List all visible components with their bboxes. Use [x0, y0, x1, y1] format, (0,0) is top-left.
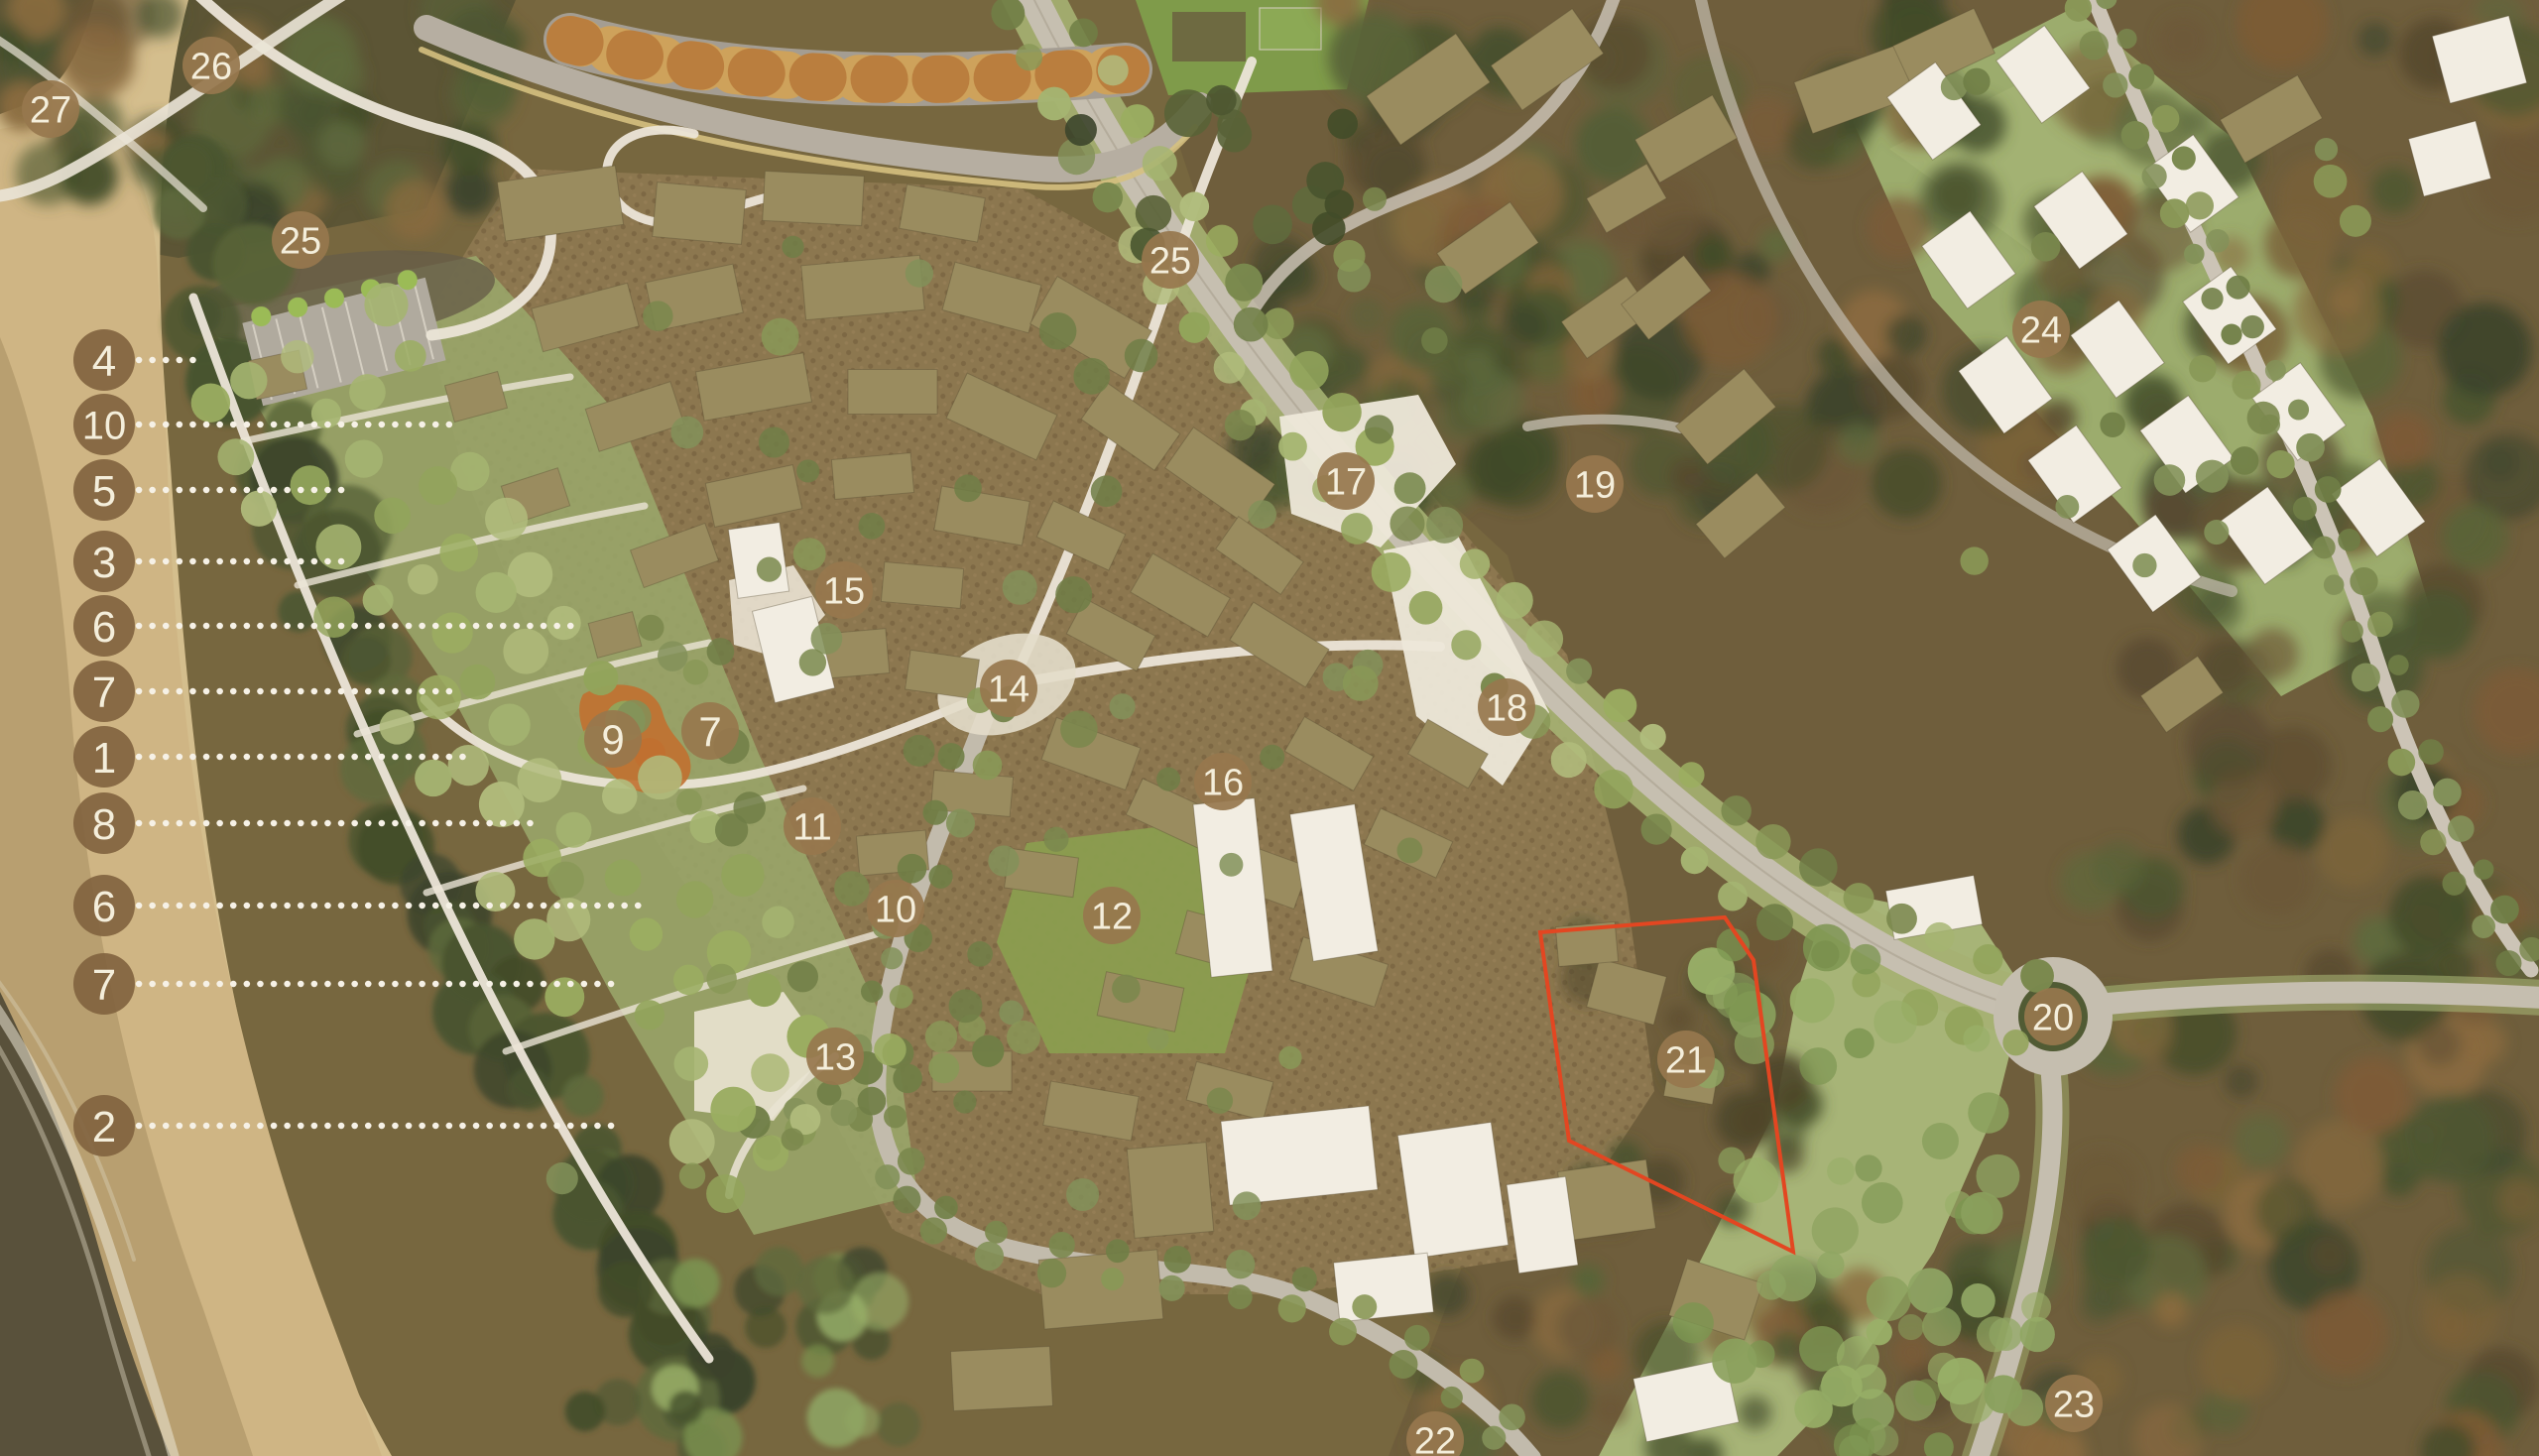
legend-marker-number: 8 [92, 800, 116, 849]
map-marker-number: 14 [988, 669, 1029, 711]
map-marker-number: 25 [280, 221, 321, 263]
map-marker-number: 10 [875, 890, 916, 931]
map-marker-15: 15 [815, 561, 873, 619]
map-marker-18: 18 [1478, 678, 1535, 736]
map-marker-number: 11 [792, 807, 831, 849]
map-marker-25: 25 [1142, 231, 1199, 289]
map-marker-19: 19 [1566, 455, 1624, 513]
legend-marker-number: 4 [92, 337, 116, 386]
legend-marker-number: 6 [92, 603, 116, 652]
map-marker-14: 14 [980, 660, 1037, 717]
legend-marker-number: 10 [82, 404, 127, 447]
map-marker-20: 20 [2024, 988, 2082, 1045]
map-marker-21: 21 [1657, 1031, 1715, 1088]
map-marker-number: 24 [2020, 310, 2062, 352]
map-marker-7: 7 [681, 702, 739, 760]
masterplan-screenshot: 4105367186722726252524191715141816791110… [0, 0, 2539, 1456]
map-marker-10: 10 [867, 880, 924, 937]
map-marker-number: 23 [2053, 1385, 2095, 1426]
map-marker-number: 15 [823, 571, 865, 613]
map-marker-number: 22 [1414, 1421, 1456, 1456]
site-plan-map: 4105367186722726252524191715141816791110… [0, 0, 2539, 1456]
map-marker-12: 12 [1083, 887, 1141, 944]
map-marker-16: 16 [1194, 753, 1252, 810]
legend-marker-number: 7 [92, 961, 116, 1010]
details-layer [0, 0, 2539, 1456]
map-marker-24: 24 [2012, 301, 2070, 358]
map-marker-number: 13 [814, 1037, 856, 1079]
map-marker-number: 25 [1149, 241, 1191, 283]
map-marker-number: 17 [1325, 462, 1367, 504]
map-marker-number: 18 [1486, 688, 1527, 730]
map-marker-number: 9 [601, 716, 624, 763]
map-marker-number: 16 [1202, 763, 1244, 804]
map-marker-25: 25 [272, 211, 329, 269]
map-marker-11: 11 [784, 797, 841, 855]
map-marker-number: 20 [2032, 998, 2074, 1039]
map-marker-13: 13 [806, 1028, 864, 1085]
map-marker-23: 23 [2045, 1375, 2103, 1432]
legend-marker-number: 5 [92, 467, 116, 516]
legend-marker-number: 6 [92, 883, 116, 931]
legend-marker-number: 3 [92, 539, 116, 587]
map-marker-number: 7 [698, 708, 721, 755]
map-marker-27: 27 [22, 80, 79, 138]
legend-marker-number: 7 [92, 668, 116, 717]
legend-marker-number: 2 [92, 1103, 116, 1152]
map-marker-17: 17 [1317, 452, 1375, 510]
map-marker-26: 26 [182, 37, 240, 94]
map-marker-number: 19 [1574, 465, 1616, 507]
map-marker-number: 21 [1665, 1040, 1707, 1082]
map-marker-9: 9 [584, 710, 642, 768]
map-marker-number: 26 [190, 47, 232, 88]
map-marker-number: 12 [1091, 897, 1133, 938]
legend-marker-number: 1 [92, 734, 116, 783]
map-marker-number: 27 [30, 90, 71, 132]
